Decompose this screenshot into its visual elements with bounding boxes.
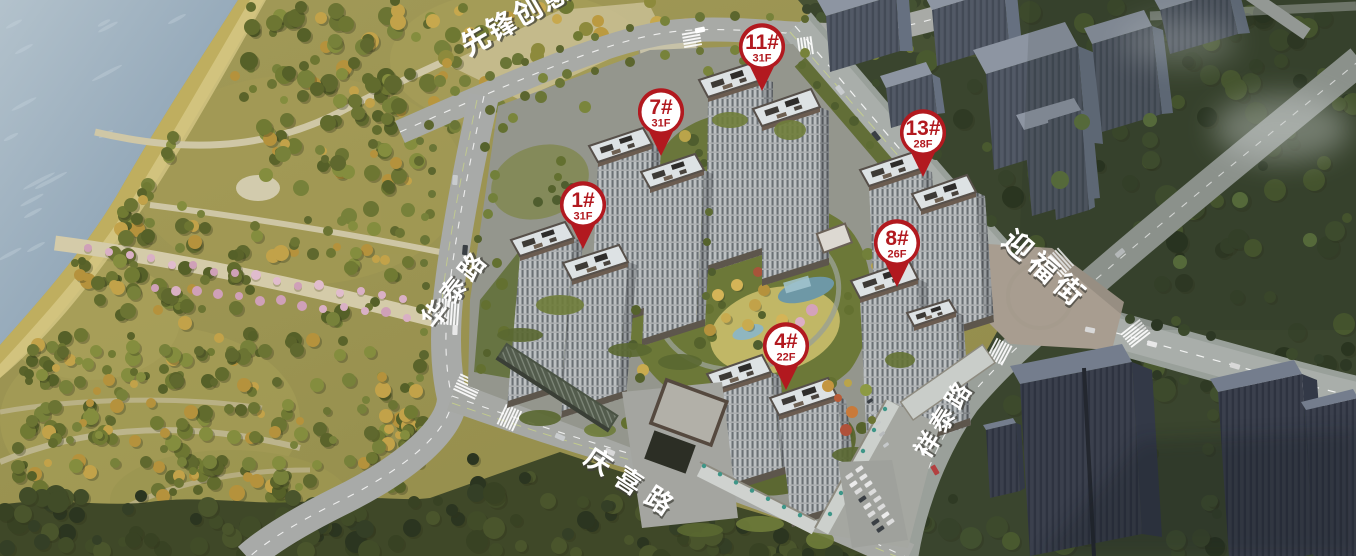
svg-text:13#: 13# bbox=[905, 117, 940, 140]
svg-text:28F: 28F bbox=[914, 139, 933, 151]
svg-text:31F: 31F bbox=[652, 118, 671, 130]
svg-text:8#: 8# bbox=[885, 227, 909, 250]
svg-text:22F: 22F bbox=[777, 352, 796, 364]
svg-text:31F: 31F bbox=[753, 53, 772, 65]
svg-text:31F: 31F bbox=[574, 211, 593, 223]
svg-text:4#: 4# bbox=[774, 330, 798, 353]
svg-text:7#: 7# bbox=[649, 96, 673, 119]
svg-text:26F: 26F bbox=[888, 249, 907, 261]
svg-text:11#: 11# bbox=[745, 31, 779, 54]
svg-text:1#: 1# bbox=[571, 189, 595, 212]
